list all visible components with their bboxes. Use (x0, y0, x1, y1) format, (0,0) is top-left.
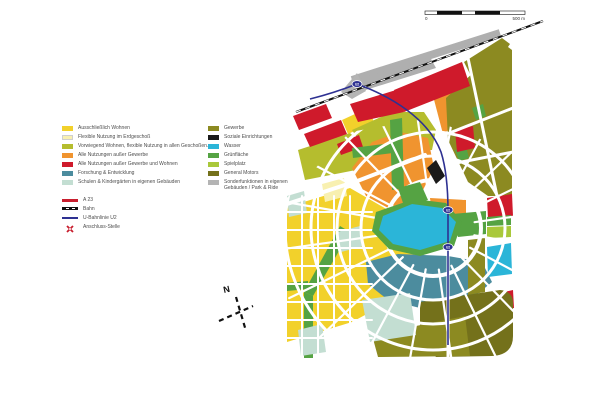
land-use-blocks (287, 38, 514, 358)
legend-label: U-Bahnlinie U2 (83, 216, 117, 222)
legend-swatch (62, 144, 73, 149)
legend-swatch (62, 126, 73, 131)
legend-label: General Motors (224, 171, 258, 177)
scale-bar: 0 500 m (425, 11, 525, 21)
masterplan-page: U2 U2 U2 0 500 m N Ausschließlich Wohnen… (0, 0, 600, 400)
north-label: N (222, 284, 230, 295)
legend-swatch (208, 135, 219, 140)
legend-right-column: Gewerbe Soziale Einrichtungen Wasser Grü… (208, 126, 300, 191)
legend-swatch (208, 126, 219, 131)
legend-item: Soziale Einrichtungen (208, 135, 300, 141)
legend-label: Wasser (224, 144, 241, 150)
legend-item: Anschluss-Stelle (62, 225, 120, 233)
legend-item: Spielplatz (208, 162, 300, 168)
legend-label: Forschung & Entwicklung (78, 171, 134, 177)
legend-item: Wasser (208, 144, 300, 150)
legend-item: Sonderfunktionen in eigenen Gebäuden / P… (208, 180, 300, 191)
anschluss-stelle-icon (62, 225, 78, 233)
legend-label: Anschluss-Stelle (83, 225, 120, 231)
legend-item: A 23 (62, 198, 120, 204)
legend-label: Schulen & Kindergärten in eigenen Gebäud… (78, 180, 180, 186)
u2-station: U2 (443, 244, 453, 251)
legend-swatch (208, 144, 219, 149)
a23-line-symbol (62, 199, 78, 202)
legend-item: Bahn (62, 207, 120, 213)
u2-station: U2 (443, 207, 453, 214)
legend-swatch (208, 153, 219, 158)
legend-label: Bahn (83, 207, 95, 213)
legend-item: Alle Nutzungen außer Gewerbe (62, 153, 208, 159)
u2-line-symbol (62, 217, 78, 219)
legend-swatch (208, 180, 219, 185)
legend-lines-column: A 23 Bahn U-Bahnlinie U2 Anschluss-Stell… (62, 198, 120, 233)
legend-left-column: Ausschließlich Wohnen Flexible Nutzung i… (62, 126, 208, 186)
legend-item: Ausschließlich Wohnen (62, 126, 208, 132)
legend-swatch (62, 153, 73, 158)
legend-swatch (208, 171, 219, 176)
legend-item: General Motors (208, 171, 300, 177)
legend-label: Alle Nutzungen außer Gewerbe (78, 153, 148, 159)
legend-label: Alle Nutzungen außer Gewerbe und Wohnen (78, 162, 178, 168)
legend-item: Gewerbe (208, 126, 300, 132)
legend-label: A 23 (83, 198, 93, 204)
legend-swatch (208, 162, 219, 167)
legend-label: Gewerbe (224, 126, 244, 132)
legend-label: Ausschließlich Wohnen (78, 126, 130, 132)
legend-swatch (62, 180, 73, 185)
legend-item: Alle Nutzungen außer Gewerbe und Wohnen (62, 162, 208, 168)
scale-zero-label: 0 (425, 16, 428, 21)
legend-item: Grünfläche (208, 153, 300, 159)
u2-station-label: U2 (446, 245, 450, 249)
legend-item: Forschung & Entwicklung (62, 171, 208, 177)
legend-item: U-Bahnlinie U2 (62, 216, 120, 222)
bahn-line-symbol (62, 207, 78, 210)
legend-item: Vorwiegend Wohnen, flexible Nutzung in a… (62, 144, 208, 150)
legend-label: Grünfläche (224, 153, 248, 159)
legend-label: Vorwiegend Wohnen, flexible Nutzung in a… (78, 144, 208, 150)
legend-swatch (62, 135, 73, 140)
legend-item: Flexible Nutzung im Erdgeschoß (62, 135, 208, 141)
legend-swatch (62, 162, 73, 167)
north-arrow-crossbar (219, 306, 253, 321)
u2-station-label: U2 (355, 82, 359, 86)
block-spielplatz (487, 226, 511, 238)
legend-swatch (62, 171, 73, 176)
u2-station-label: U2 (446, 208, 450, 212)
legend-label: Spielplatz (224, 162, 246, 168)
legend-item: Schulen & Kindergärten in eigenen Gebäud… (62, 180, 208, 186)
north-arrow: N (219, 284, 253, 331)
legend-label: Soziale Einrichtungen (224, 135, 272, 141)
scale-max-label: 500 m (512, 16, 525, 21)
u2-station: U2 (352, 81, 362, 88)
legend-label: Sonderfunktionen in eigenen Gebäuden / P… (224, 180, 300, 191)
legend-label: Flexible Nutzung im Erdgeschoß (78, 135, 150, 141)
